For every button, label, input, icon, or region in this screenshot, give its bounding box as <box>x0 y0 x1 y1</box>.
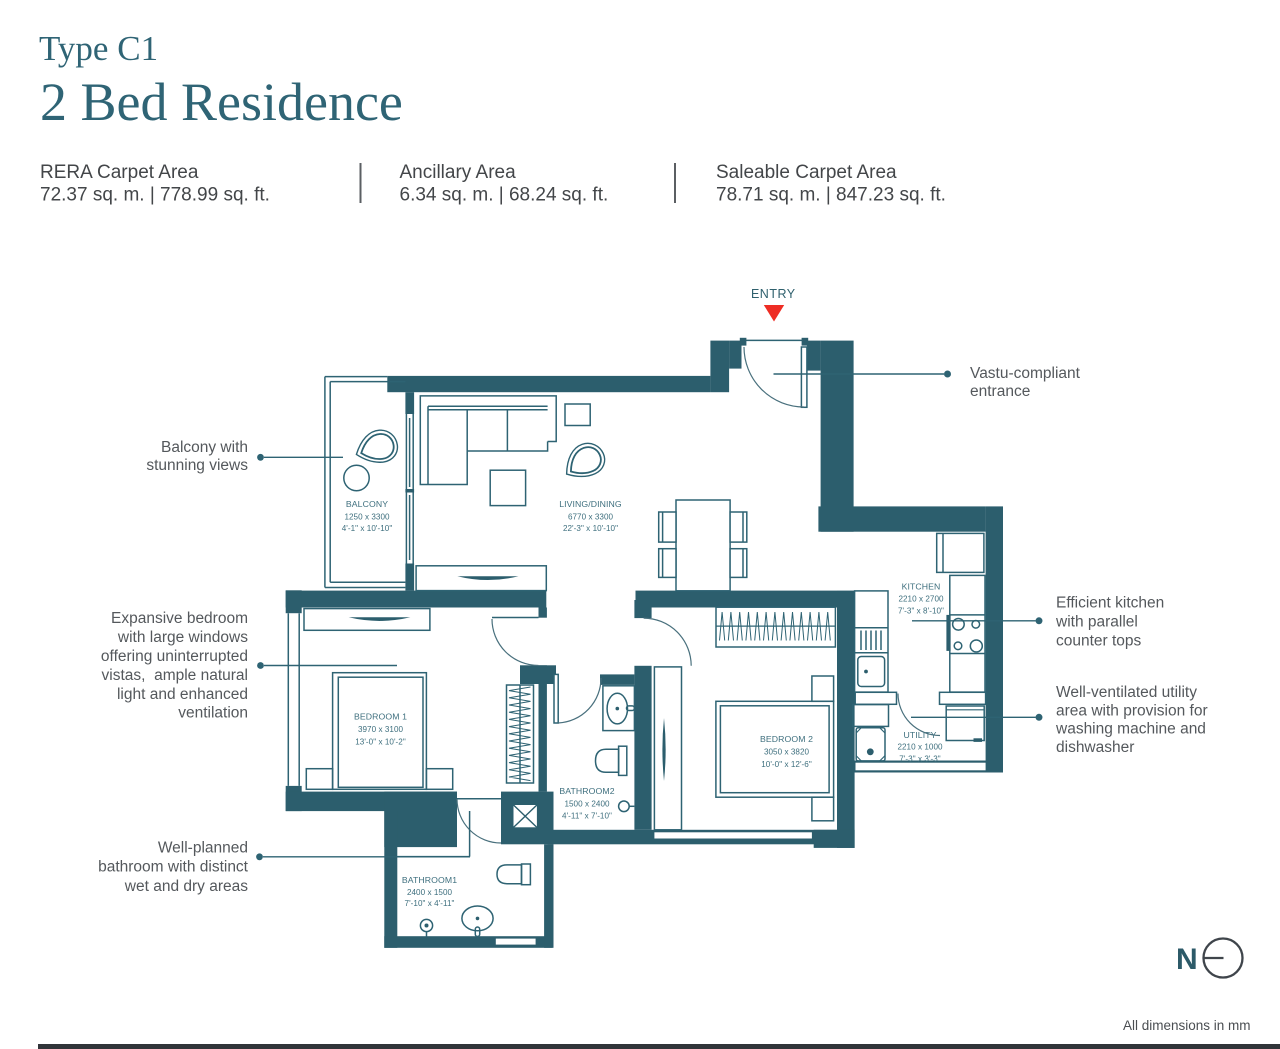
svg-text:3050 x 3820: 3050 x 3820 <box>764 748 810 757</box>
svg-text:2400 x 1500: 2400 x 1500 <box>407 888 453 897</box>
svg-text:Well-ventilated utility: Well-ventilated utility <box>1056 684 1197 701</box>
svg-text:BATHROOM2: BATHROOM2 <box>559 786 614 796</box>
svg-text:UTILITY: UTILITY <box>903 730 936 740</box>
svg-text:78.71 sq. m. | 847.23 sq. ft.: 78.71 sq. m. | 847.23 sq. ft. <box>716 185 946 206</box>
svg-text:LIVING/DINING: LIVING/DINING <box>559 499 622 509</box>
svg-text:wet and dry areas: wet and dry areas <box>124 878 248 895</box>
svg-text:7'-3" x 8'-10": 7'-3" x 8'-10" <box>898 607 944 616</box>
svg-text:light and enhanced: light and enhanced <box>117 686 248 703</box>
svg-text:offering uninterrupted: offering uninterrupted <box>101 648 248 665</box>
svg-text:2 Bed Residence: 2 Bed Residence <box>40 72 403 132</box>
svg-text:3970 x 3100: 3970 x 3100 <box>358 725 404 734</box>
svg-text:with large windows: with large windows <box>117 629 248 646</box>
svg-text:Saleable Carpet Area: Saleable Carpet Area <box>716 162 897 183</box>
svg-text:BATHROOM1: BATHROOM1 <box>402 875 457 885</box>
svg-text:13'-0" x 10'-2": 13'-0" x 10'-2" <box>355 738 406 747</box>
svg-text:1500 x 2400: 1500 x 2400 <box>564 800 610 809</box>
svg-text:2210 x 1000: 2210 x 1000 <box>897 743 943 752</box>
svg-text:dishwasher: dishwasher <box>1056 739 1134 756</box>
svg-text:4'-1" x 10'-10": 4'-1" x 10'-10" <box>342 524 393 533</box>
svg-text:BEDROOM 2: BEDROOM 2 <box>760 734 813 744</box>
svg-text:entrance: entrance <box>970 383 1030 400</box>
svg-text:6.34 sq. m. | 68.24 sq. ft.: 6.34 sq. m. | 68.24 sq. ft. <box>400 185 609 206</box>
svg-text:N: N <box>1176 943 1198 976</box>
svg-text:Expansive bedroom: Expansive bedroom <box>111 610 248 627</box>
svg-text:10'-0" x 12'-6": 10'-0" x 12'-6" <box>761 760 812 769</box>
svg-text:4'-11" x 7'-10": 4'-11" x 7'-10" <box>562 812 612 821</box>
svg-text:BALCONY: BALCONY <box>346 499 388 509</box>
svg-text:1250 x 3300: 1250 x 3300 <box>344 513 390 522</box>
svg-text:RERA Carpet Area: RERA Carpet Area <box>40 162 199 183</box>
svg-text:7'-10" x 4'-11": 7'-10" x 4'-11" <box>405 899 455 908</box>
svg-text:Well-planned: Well-planned <box>158 840 248 857</box>
svg-text:Type C1: Type C1 <box>39 29 158 68</box>
svg-text:All dimensions in mm: All dimensions in mm <box>1123 1018 1251 1033</box>
svg-text:2210 x 2700: 2210 x 2700 <box>898 595 944 604</box>
svg-text:KITCHEN: KITCHEN <box>902 582 941 592</box>
svg-text:ENTRY: ENTRY <box>751 287 796 301</box>
svg-text:vistas, ample natural: vistas, ample natural <box>102 667 248 684</box>
svg-text:ventilation: ventilation <box>178 705 248 722</box>
svg-text:washing machine and: washing machine and <box>1055 721 1206 738</box>
svg-text:6770 x 3300: 6770 x 3300 <box>568 513 614 522</box>
svg-text:bathroom with distinct: bathroom with distinct <box>98 859 249 876</box>
svg-text:Ancillary Area: Ancillary Area <box>400 162 517 183</box>
svg-text:Efficient kitchen: Efficient kitchen <box>1056 595 1164 612</box>
svg-text:with parallel: with parallel <box>1055 614 1138 631</box>
svg-text:Vastu-compliant: Vastu-compliant <box>970 365 1081 382</box>
svg-text:22'-3" x 10'-10": 22'-3" x 10'-10" <box>563 524 618 533</box>
svg-text:Balcony with: Balcony with <box>161 439 248 456</box>
svg-text:counter tops: counter tops <box>1056 633 1142 650</box>
svg-text:7'-3" x 3'-3": 7'-3" x 3'-3" <box>899 755 941 764</box>
svg-text:stunning views: stunning views <box>146 457 248 474</box>
svg-text:72.37 sq. m. | 778.99 sq. ft.: 72.37 sq. m. | 778.99 sq. ft. <box>40 185 270 206</box>
svg-text:area with provision for: area with provision for <box>1056 702 1208 719</box>
svg-text:BEDROOM 1: BEDROOM 1 <box>354 712 407 722</box>
